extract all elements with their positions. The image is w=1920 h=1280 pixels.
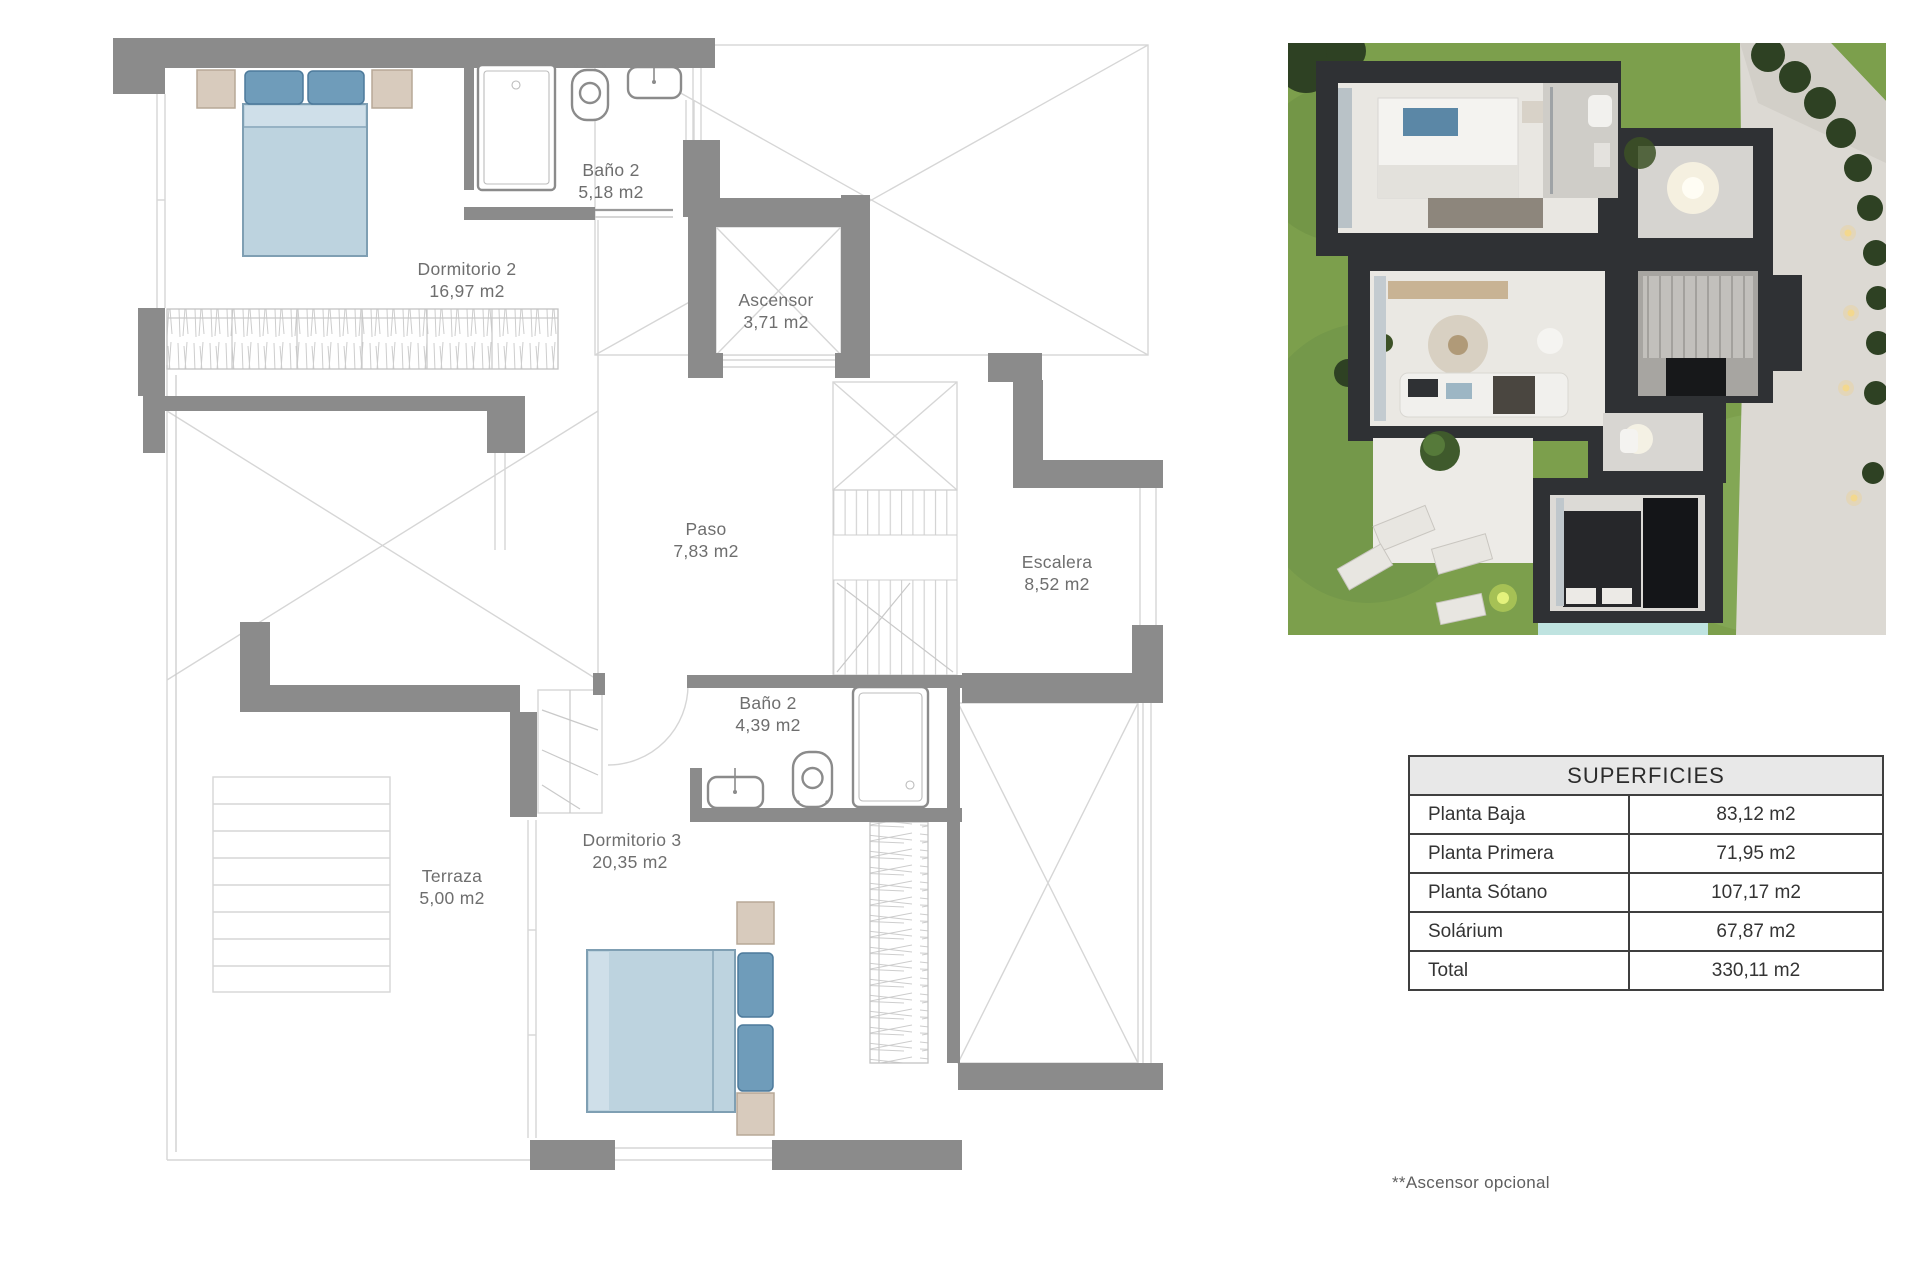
room-label-paso: Paso <box>685 519 726 539</box>
room-area-ascensor: 3,71 m2 <box>743 312 808 332</box>
dormitorio2-bed <box>197 70 412 256</box>
room-label-ascensor: Ascensor <box>738 290 813 310</box>
stair-window <box>1140 488 1156 625</box>
toilet-bottom-icon <box>793 752 832 807</box>
room-label-terraza: Terraza <box>422 866 482 886</box>
table-row: Planta Primera 71,95 m2 <box>1410 835 1882 874</box>
render-living <box>1370 271 1605 426</box>
door-arc <box>608 685 688 765</box>
wardrobe-dormitorio3 <box>870 822 928 1063</box>
table-row: Planta Sótano 107,17 m2 <box>1410 874 1882 913</box>
bath-top-door <box>595 210 673 217</box>
row-value: 71,95 m2 <box>1630 835 1882 872</box>
room-area-bano2-top: 5,18 m2 <box>578 182 643 202</box>
bathtub <box>478 65 555 190</box>
row-label: Planta Primera <box>1410 835 1630 872</box>
row-label: Planta Sótano <box>1410 874 1630 911</box>
closet-dormitorio2 <box>167 309 558 369</box>
room-label-dormitorio3: Dormitorio 3 <box>583 830 682 850</box>
sink-bottom-icon <box>708 768 763 808</box>
plot-boundary <box>167 365 530 1160</box>
staircase <box>833 382 957 675</box>
render-bath-small <box>1603 413 1703 471</box>
void-room-cross <box>167 220 598 680</box>
table-row: Solárium 67,87 m2 <box>1410 913 1882 952</box>
terrace-steps <box>213 777 390 992</box>
footnote-ascensor-opcional: **Ascensor opcional <box>1392 1173 1550 1193</box>
roof-outline-bottom-right <box>958 703 1151 1063</box>
room-area-dormitorio3: 20,35 m2 <box>592 852 667 872</box>
row-value: 107,17 m2 <box>1630 874 1882 911</box>
table-row: Planta Baja 83,12 m2 <box>1410 796 1882 835</box>
table-row: Total 330,11 m2 <box>1410 952 1882 989</box>
row-value: 330,11 m2 <box>1630 952 1882 989</box>
room-label-bano2-bottom: Baño 2 <box>739 693 796 713</box>
room-area-terraza: 5,00 m2 <box>419 888 484 908</box>
room-label-escalera: Escalera <box>1022 552 1093 572</box>
room-area-bano2-bottom: 4,39 m2 <box>735 715 800 735</box>
glass-panel <box>538 690 602 813</box>
surfaces-table-title: SUPERFICIES <box>1410 757 1882 796</box>
surfaces-table: SUPERFICIES Planta Baja 83,12 m2 Planta … <box>1408 755 1884 991</box>
render-3d-aerial <box>1288 43 1886 635</box>
room-area-escalera: 8,52 m2 <box>1024 574 1089 594</box>
render-stairs <box>1638 271 1758 396</box>
room-area-paso: 7,83 m2 <box>673 541 738 561</box>
shower <box>853 687 928 807</box>
room-label-dormitorio2: Dormitorio 2 <box>418 259 517 279</box>
row-value: 67,87 m2 <box>1630 913 1882 950</box>
room-area-dormitorio2: 16,97 m2 <box>429 281 504 301</box>
render-bath-top <box>1543 83 1618 198</box>
row-value: 83,12 m2 <box>1630 796 1882 833</box>
row-label: Solárium <box>1410 913 1630 950</box>
row-label: Planta Baja <box>1410 796 1630 833</box>
render-hall <box>1624 137 1753 238</box>
render-pool <box>1538 623 1708 635</box>
dormitorio3-bed <box>587 902 774 1135</box>
floor-plan: Dormitorio 2 16,97 m2 Baño 2 5,18 m2 Asc… <box>110 30 1170 1170</box>
toilet-top-icon <box>572 64 608 120</box>
row-label: Total <box>1410 952 1630 989</box>
render-bedroom-bottom <box>1550 495 1705 611</box>
room-label-bano2-top: Baño 2 <box>582 160 639 180</box>
